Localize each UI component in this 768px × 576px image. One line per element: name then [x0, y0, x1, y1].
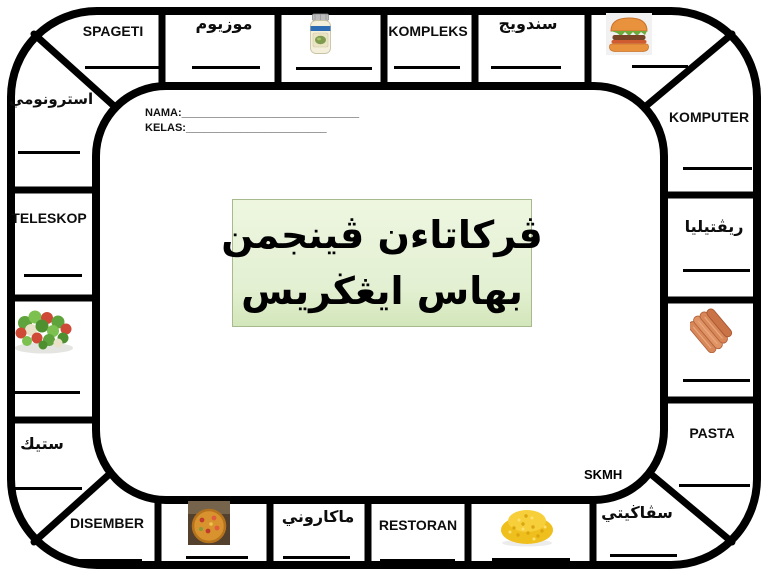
cell-label-pasta: PASTA [689, 426, 734, 441]
cell-label-restoran: RESTORAN [379, 518, 457, 533]
answer-blank-spageti [85, 66, 160, 69]
answer-blank-astronomi [18, 151, 80, 154]
cell-label-spageti: SPAGETI [83, 24, 143, 39]
answer-blank-disember [70, 559, 142, 562]
answer-blank-spageti-jawi [610, 554, 677, 557]
answer-blank-reptilia [683, 269, 750, 272]
pizza-image [188, 501, 230, 545]
answer-blank-pasta [679, 484, 750, 487]
school-code: SKMH [584, 467, 622, 482]
answer-blank-restoran [380, 559, 455, 562]
cell-label-reptilia: ريڤتيليا [685, 218, 744, 236]
cell-label-muzium: موزيوم [196, 15, 253, 33]
cell-label-disember: DISEMBER [70, 516, 144, 531]
nama-field: NAMA:_____________________________ [145, 107, 359, 119]
answer-blank-teleskop [24, 274, 82, 277]
kelas-blank-line: _______________________ [186, 122, 327, 134]
cell-label-sandwic: سندويج [499, 15, 558, 33]
nama-label: NAMA: [145, 107, 182, 119]
worksheet-board: SPAGETI موزيوم KOMPLEKS سندويج استر [0, 0, 768, 576]
title-line-1: ڤرکاتاءن ڤينجمن [221, 207, 542, 263]
salad-plate-image [10, 305, 78, 355]
answer-blank-salad [13, 391, 80, 394]
macaroni-heap-image [498, 502, 556, 548]
cell-label-spageti-jawi: سڤاڬيتي [601, 504, 673, 522]
answer-blank-komputer [683, 167, 752, 170]
cell-label-teleskop: TELESKOP [11, 211, 86, 226]
cell-label-komputer: KOMPUTER [669, 110, 749, 125]
answer-blank-muzium [192, 66, 260, 69]
cell-label-stik: ستيك [20, 435, 64, 453]
answer-blank-pizza [186, 556, 248, 559]
answer-blank-sandwic [491, 66, 561, 69]
answer-blank-kompleks [394, 66, 460, 69]
cell-label-kompleks: KOMPLEKS [388, 24, 467, 39]
sausages-bunch-image [690, 305, 734, 353]
title-line-2: بهاس ايڠڬريس [241, 263, 523, 319]
answer-blank-macaroni [492, 558, 570, 561]
cell-label-makaroni: ماكاروني [282, 508, 355, 526]
title-box: ڤرکاتاءن ڤينجمن بهاس ايڠڬريس [232, 199, 532, 327]
hamburger-image [606, 13, 652, 55]
answer-blank-mayonnaise [296, 67, 372, 70]
kelas-field: KELAS:_______________________ [145, 122, 327, 134]
nama-blank-line: _____________________________ [182, 107, 359, 119]
answer-blank-makaroni [283, 556, 350, 559]
answer-blank-burger [632, 65, 688, 68]
mayonnaise-jar-image [307, 13, 334, 55]
answer-blank-sausages [683, 379, 750, 382]
answer-blank-stik [12, 487, 82, 490]
kelas-label: KELAS: [145, 122, 186, 134]
cell-label-astronomi: استرونومي [9, 91, 93, 108]
